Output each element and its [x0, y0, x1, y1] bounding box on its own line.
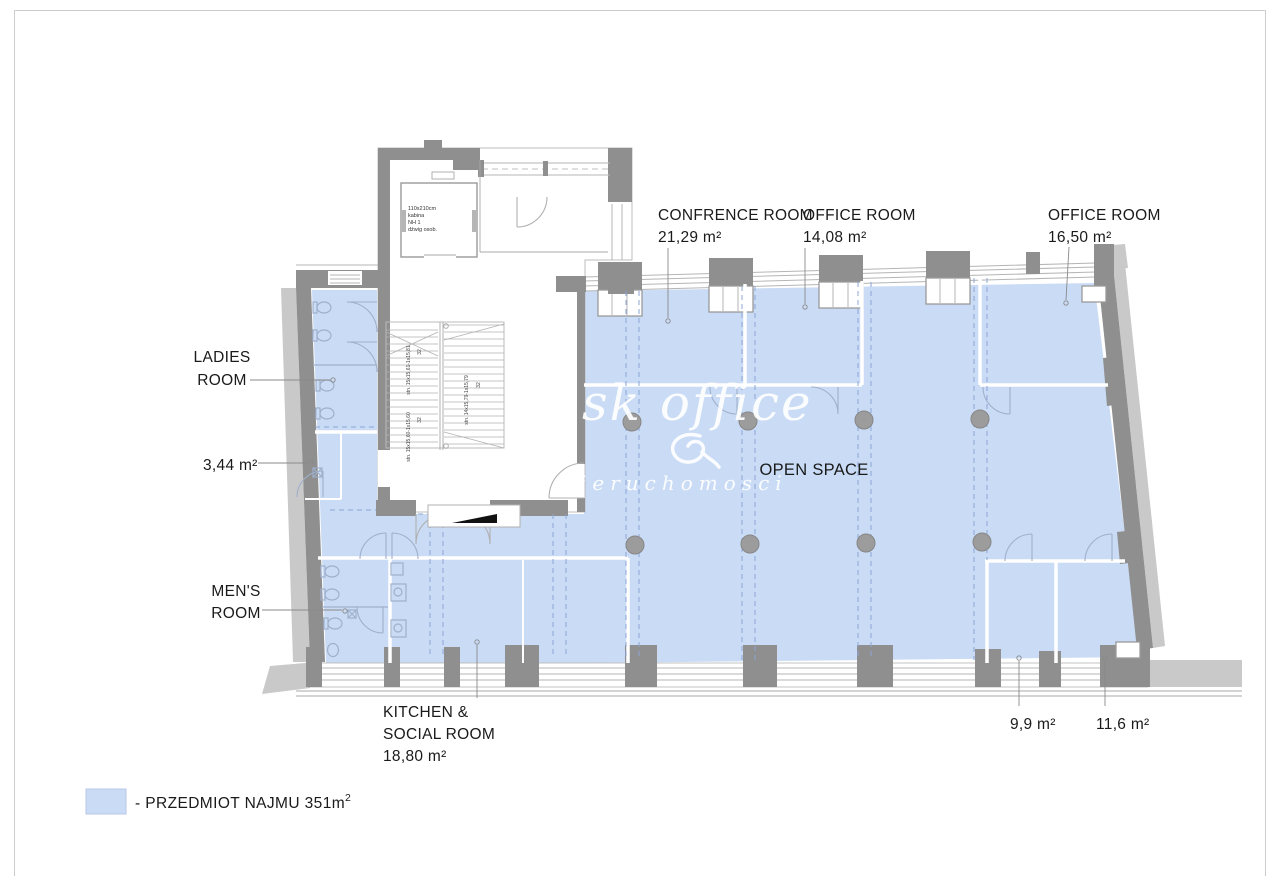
legend-label-text: - PRZEDMIOT NAJMU 351m: [135, 795, 345, 812]
room-9-area: 9,9 m²: [1010, 716, 1056, 733]
elevator-line3: NH 1: [408, 220, 421, 226]
mens-room-name-line1: MEN'S: [211, 583, 260, 600]
stair-count-2: 32: [417, 417, 423, 423]
elevator-line2: kabina: [408, 213, 425, 219]
elevator: 110x210cm kabina NH 1 dźwig osob.: [401, 172, 477, 259]
conference-room-area: 21,29 m²: [658, 229, 722, 246]
entrance-marker: [428, 505, 520, 527]
legend-label-superscript: 2: [345, 792, 351, 804]
legend-swatch: [86, 789, 126, 814]
ladies-room-name-line2: ROOM: [197, 372, 246, 389]
ladies-room-name-line1: LADIES: [194, 349, 251, 366]
stair-dim-1: stn. 15x15,61-1x15,81: [406, 345, 412, 395]
watermark-subtitle: ieruchomosci: [580, 471, 788, 495]
stair-count-1: 32: [417, 349, 423, 355]
stair-count-3: 32: [476, 382, 482, 388]
floor-plan-svg: 110x210cm kabina NH 1 dźwig osob. stn. 1…: [0, 0, 1280, 876]
legend: - PRZEDMIOT NAJMU 351m2: [86, 789, 351, 814]
kitchen-name-line1: KITCHEN &: [383, 704, 469, 721]
conference-room-name: CONFRENCE ROOM: [658, 207, 813, 224]
elevator-line1: 110x210cm: [408, 206, 436, 212]
office-16-area: 16,50 m²: [1048, 229, 1112, 246]
office-14-name: OFFICE ROOM: [803, 207, 916, 224]
elevator-line4: dźwig osob.: [408, 227, 438, 233]
room-11-area: 11,6 m²: [1096, 716, 1150, 733]
watermark-title: sk office: [582, 374, 813, 432]
stair-dim-2: stn. 15x15,60-1x15,60: [406, 412, 412, 462]
floor-plan-page: 110x210cm kabina NH 1 dźwig osob. stn. 1…: [0, 0, 1280, 876]
office-16-name: OFFICE ROOM: [1048, 207, 1161, 224]
kitchen-name-line2: SOCIAL ROOM: [383, 726, 495, 743]
open-space-label: OPEN SPACE: [759, 461, 868, 479]
office-14-area: 14,08 m²: [803, 229, 867, 246]
mens-room-name-line2: ROOM: [211, 605, 260, 622]
stair-dim-3: stn. 14x15,79-1x15,79: [464, 375, 470, 425]
top-right-corner-pillar: [1094, 244, 1114, 292]
legend-label: - PRZEDMIOT NAJMU 351m2: [135, 792, 351, 812]
kitchen-area: 18,80 m²: [383, 748, 447, 765]
ladies-room-area: 3,44 m²: [203, 457, 258, 474]
